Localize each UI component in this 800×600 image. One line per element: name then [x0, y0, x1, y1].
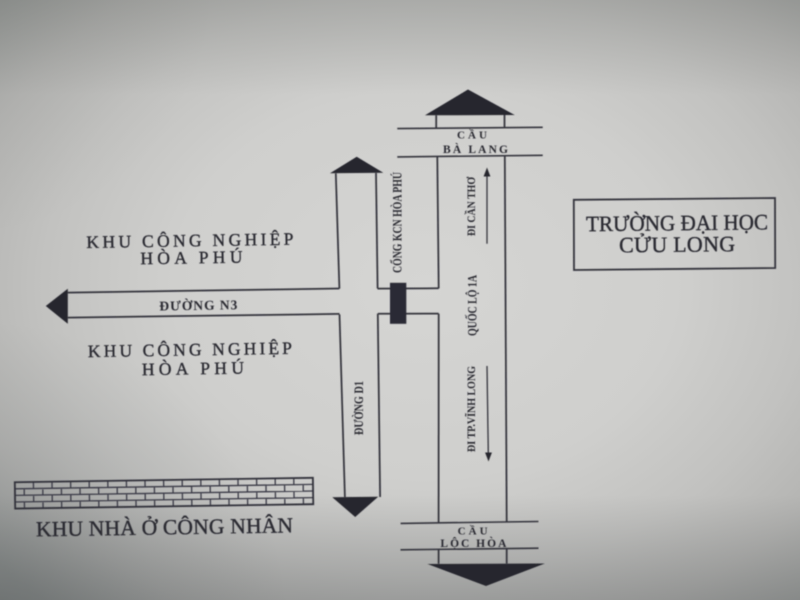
svg-text:ĐƯỜNG D1: ĐƯỜNG D1 — [352, 381, 366, 435]
svg-text:QUỐC LỘ 1A: QUỐC LỘ 1A — [465, 275, 480, 336]
svg-text:CỔNG KCN HÒA PHÚ: CỔNG KCN HÒA PHÚ — [390, 172, 405, 273]
svg-text:BÀ LANG: BÀ LANG — [443, 142, 508, 156]
svg-text:CẦU: CẦU — [458, 524, 488, 537]
svg-text:CẦU: CẦU — [457, 129, 487, 142]
svg-text:ĐƯỜNG N3: ĐƯỜNG N3 — [159, 297, 237, 313]
svg-text:ĐI CẦN THƠ: ĐI CẦN THƠ — [463, 176, 478, 236]
svg-text:KHU NHÀ Ở CÔNG NHÂN: KHU NHÀ Ở CÔNG NHÂN — [36, 513, 294, 541]
svg-text:ĐI TP.VĨNH LONG: ĐI TP.VĨNH LONG — [464, 366, 478, 452]
svg-text:CỬU LONG: CỬU LONG — [619, 231, 735, 257]
